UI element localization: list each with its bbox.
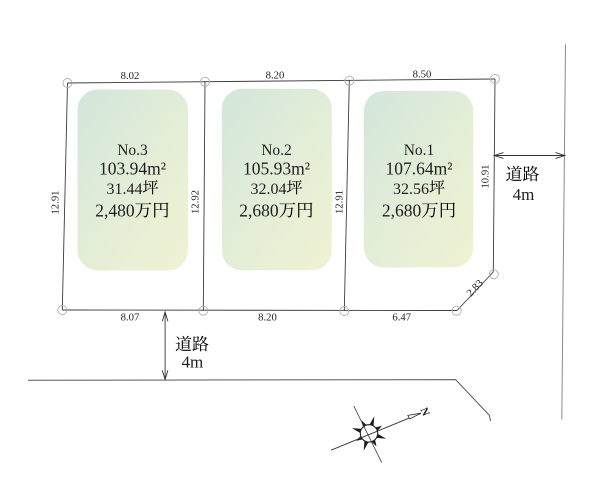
svg-text:8.02: 8.02: [121, 70, 140, 82]
svg-text:8.20: 8.20: [266, 70, 285, 82]
svg-text:8.07: 8.07: [121, 312, 140, 324]
svg-text:32.04: 32.04: [251, 181, 287, 198]
svg-text:105.93m²: 105.93m²: [243, 159, 310, 179]
svg-text:4m: 4m: [182, 353, 204, 372]
svg-text:107.64m²: 107.64m²: [386, 159, 453, 179]
svg-text:12.91: 12.91: [50, 190, 62, 214]
svg-text:32.56: 32.56: [393, 181, 429, 198]
svg-text:No.1: No.1: [404, 142, 435, 159]
svg-text:No.3: No.3: [117, 142, 148, 159]
svg-text:2,680: 2,680: [382, 200, 422, 220]
svg-text:12.91: 12.91: [334, 190, 346, 214]
svg-text:4m: 4m: [513, 185, 535, 204]
svg-text:12.92: 12.92: [190, 190, 202, 214]
svg-text:8.50: 8.50: [413, 69, 432, 81]
svg-text:6.47: 6.47: [392, 311, 411, 323]
svg-text:8.20: 8.20: [258, 311, 277, 323]
svg-text:10.91: 10.91: [480, 164, 492, 188]
svg-text:2,680: 2,680: [239, 200, 279, 220]
svg-text:No.2: No.2: [261, 142, 292, 159]
svg-text:103.94m²: 103.94m²: [99, 159, 166, 179]
svg-text:2,480: 2,480: [95, 200, 135, 220]
svg-text:31.44: 31.44: [107, 181, 143, 198]
